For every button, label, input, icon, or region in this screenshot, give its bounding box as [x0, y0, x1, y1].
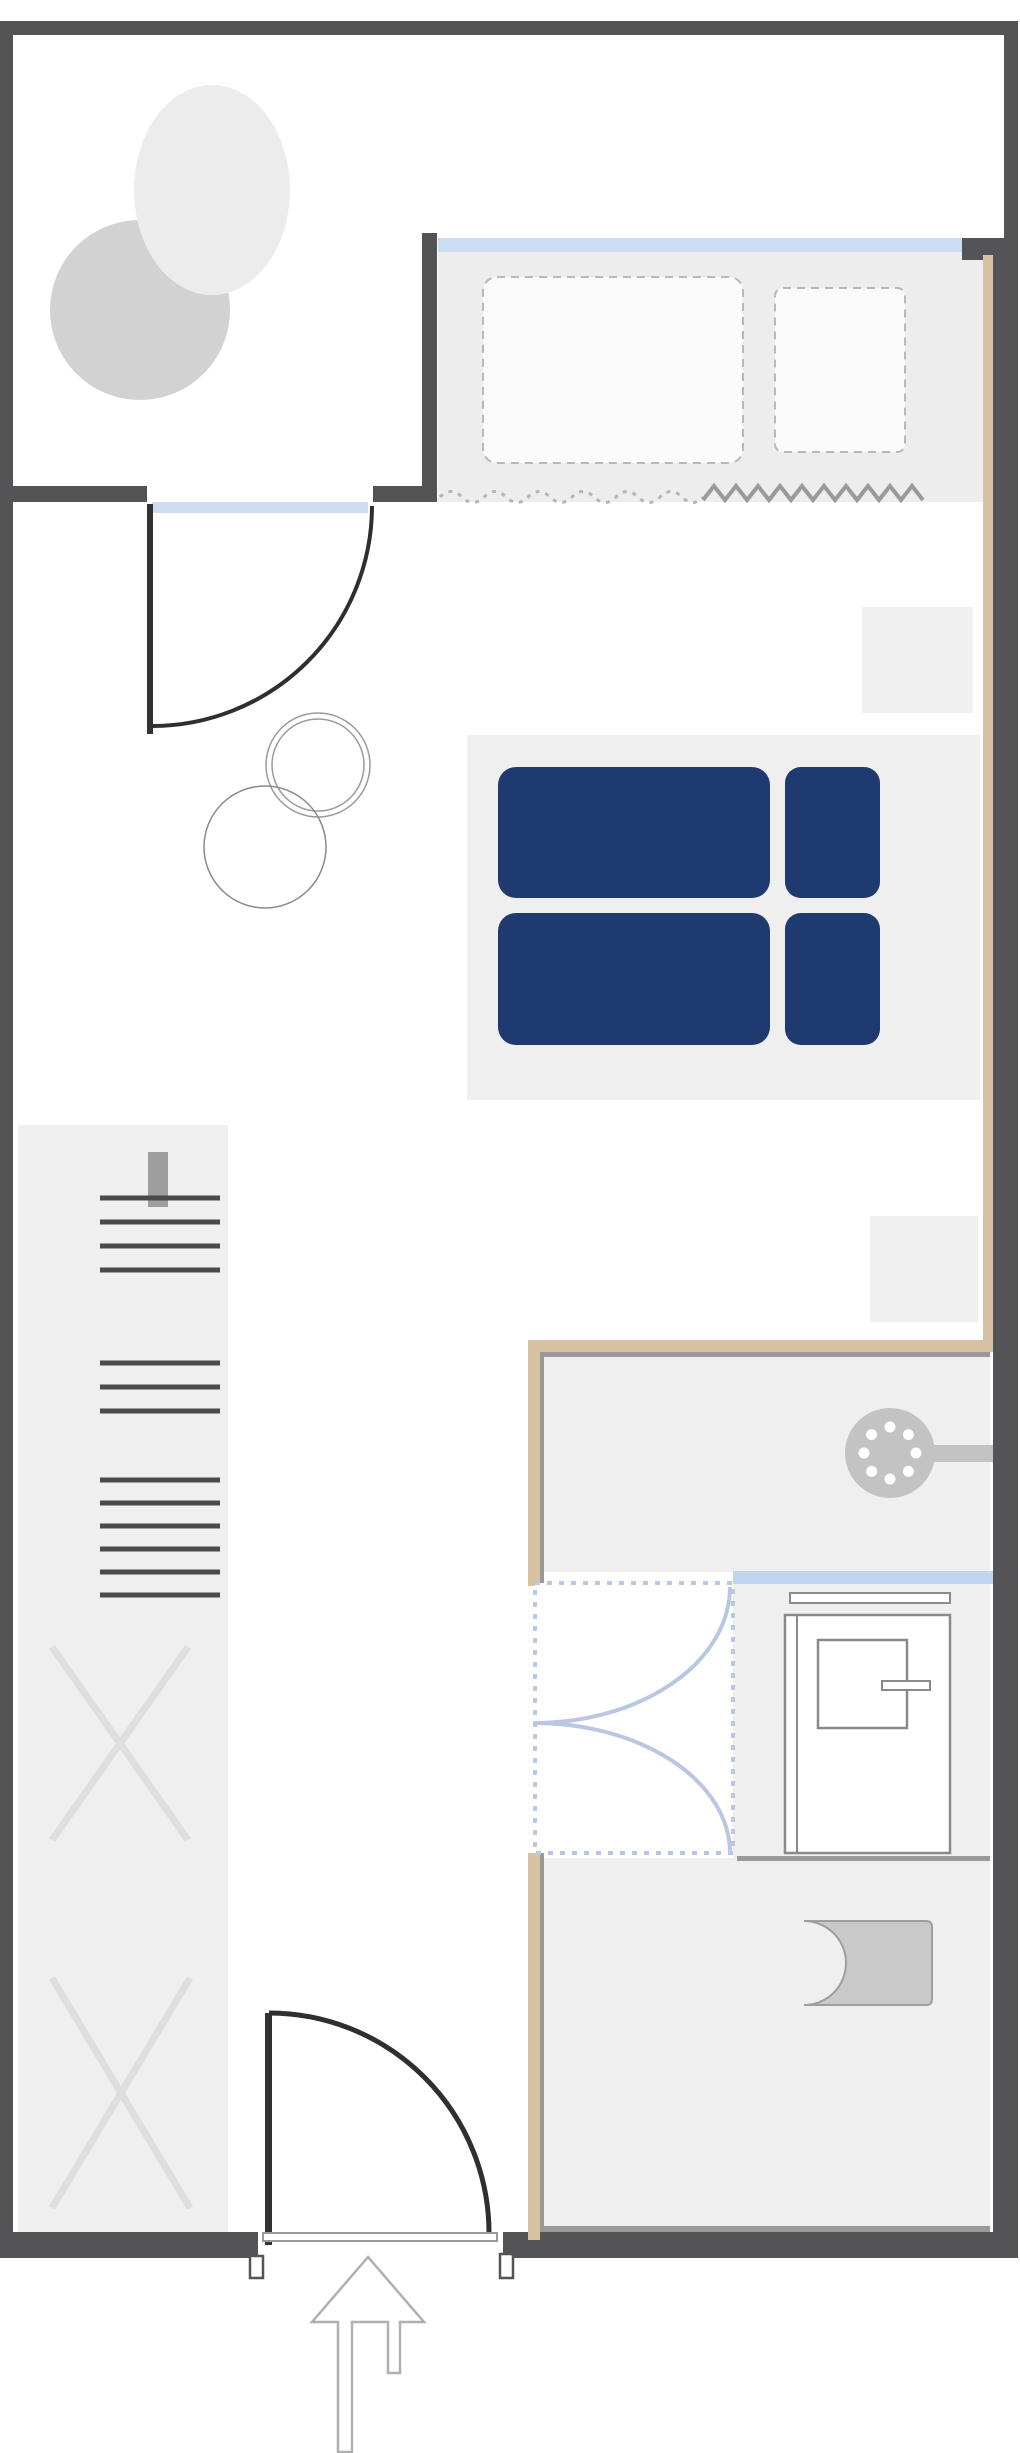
bath-wall-left-lower-tan: [528, 1853, 540, 2240]
pillow-top: [785, 767, 880, 898]
bath-wall-top-tan: [528, 1340, 993, 1352]
hidden-furniture-outline-small: [775, 288, 905, 452]
shower-head-nozzles-2: [885, 1474, 896, 1485]
hidden-furniture-outline-large: [483, 277, 743, 463]
entrance-jamb-left: [250, 2256, 263, 2278]
window-main: [438, 238, 962, 252]
bath-wall-bottom-innerline: [540, 2226, 990, 2232]
wall-bottom-left: [0, 2232, 258, 2258]
vanity-divider-line: [737, 1856, 990, 1861]
duvet-bottom: [498, 913, 770, 1045]
shower-head-nozzles-7: [903, 1429, 914, 1440]
bath-wall-left-upper-innerline: [540, 1352, 544, 1586]
floor-plan: [0, 0, 1020, 2453]
duvet-top: [498, 767, 770, 898]
shower-head-nozzles-5: [866, 1429, 877, 1440]
balcony-table: [134, 85, 290, 295]
chair-ring: [204, 786, 326, 908]
bath-wall-top-innerline: [540, 1352, 990, 1357]
shower-glass-screen: [733, 1571, 993, 1584]
shower-head-nozzles-0: [911, 1448, 922, 1459]
wc-area-floor: [540, 1858, 990, 2232]
balcony-door-leaf: [147, 504, 153, 734]
shower-head-nozzles-6: [885, 1422, 896, 1433]
entrance-door-swing-arc: [269, 2013, 489, 2233]
balcony-door-swing-arc: [152, 506, 372, 726]
towel-rail: [790, 1593, 950, 1603]
side-table-ring-outer: [266, 713, 370, 817]
floor-plan-drawing: [0, 0, 1020, 2453]
wall-top: [0, 21, 1016, 35]
bath-wall-left-lower-innerline: [540, 1853, 544, 2232]
wall-left: [0, 21, 13, 2258]
balcony-wall-left: [13, 486, 147, 502]
balcony-partition-wall: [422, 233, 437, 502]
wall-right-tan-facing: [983, 255, 993, 1340]
balcony-door-sill: [152, 502, 368, 513]
pillow-bottom: [785, 913, 880, 1045]
wall-right-upper: [1004, 21, 1018, 241]
wardrobe-panel: [18, 1125, 228, 2232]
side-table-ring-inner: [272, 719, 364, 811]
entrance-jamb-right: [500, 2254, 513, 2278]
shower-arm: [930, 1445, 993, 1462]
wall-right-main: [993, 238, 1018, 2258]
nightstand-top: [862, 607, 973, 713]
shower-head-nozzles-1: [903, 1466, 914, 1477]
balcony-wall-stub: [373, 486, 437, 502]
nightstand-bottom: [870, 1216, 978, 1322]
wall-bottom-right: [503, 2232, 1018, 2258]
shower-head-nozzles-3: [866, 1466, 877, 1477]
entrance-arrow: [312, 2257, 424, 2452]
sink-faucet: [882, 1681, 930, 1690]
entrance-threshold: [263, 2233, 497, 2241]
shower-enclosure: [535, 1583, 733, 1853]
entrance-door-leaf: [265, 2013, 272, 2245]
shower-head-nozzles-4: [859, 1448, 870, 1459]
bath-wall-left-upper-tan: [528, 1340, 540, 1586]
